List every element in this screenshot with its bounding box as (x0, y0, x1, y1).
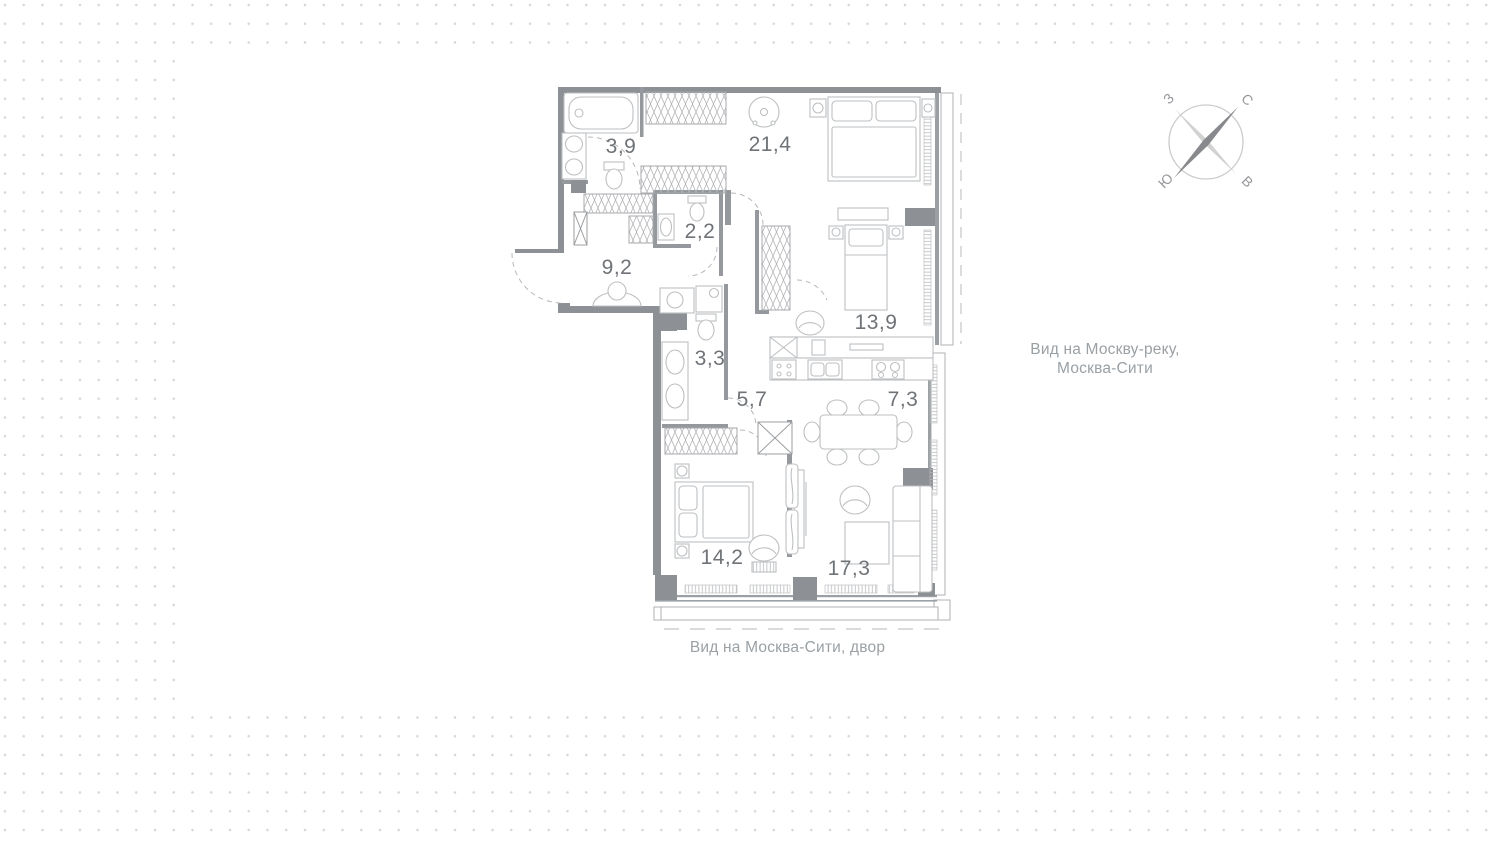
room-area-bedroom-3: 14,2 (701, 546, 744, 569)
compass-north-label: С (1238, 90, 1256, 108)
view-note-right-line2: Москва-Сити (1000, 359, 1210, 378)
floor-plan: 3,9 21,4 2,2 9,2 13,9 3,3 5,7 7,3 14,2 1… (500, 80, 970, 640)
nightstand-icon (675, 544, 689, 558)
single-bed-icon (845, 225, 887, 310)
room-area-wc: 2,2 (685, 220, 716, 243)
toilet-icon (688, 196, 706, 221)
sofa-icon (893, 486, 932, 592)
armchair-icon (749, 535, 779, 572)
nightstand-icon (810, 99, 826, 117)
nightstand-icon (829, 226, 843, 239)
double-bed-icon (675, 482, 753, 542)
wardrobe-icon (762, 226, 790, 310)
wardrobe-icon (646, 92, 726, 124)
room-area-bathroom: 3,9 (606, 135, 637, 158)
kitchen-sink-icon (808, 360, 842, 379)
view-note-right-line1: Вид на Москву-реку, (1000, 340, 1210, 359)
view-note-bottom-line: Вид на Москва-Сити, двор (660, 638, 915, 657)
dresser-icon (838, 208, 888, 220)
ceiling-lamp-icon (749, 97, 779, 127)
nightstand-icon (675, 464, 689, 478)
shaft-icon (574, 212, 587, 245)
washing-machine-icon (660, 288, 694, 313)
double-sink-icon (662, 342, 688, 420)
wardrobe-icon (665, 428, 737, 454)
hob-icon (872, 360, 904, 379)
room-area-kitchen: 7,3 (888, 388, 919, 411)
console-table-icon (593, 282, 641, 306)
nightstand-icon (922, 99, 935, 117)
armchair-icon (796, 311, 824, 335)
room-area-hallway: 9,2 (602, 256, 633, 279)
compass-east-label: В (1239, 173, 1257, 191)
armchair-icon (840, 486, 870, 514)
toilet-icon (696, 314, 716, 340)
shaft-icon (758, 422, 792, 454)
nightstand-icon (889, 226, 903, 239)
oven-icon (772, 360, 796, 379)
wardrobe-icon (584, 194, 653, 213)
entrance-door-arc (512, 253, 562, 303)
room-area-corridor: 5,7 (737, 388, 768, 411)
toilet-icon (604, 162, 624, 189)
view-note-right: Вид на Москву-реку, Москва-Сити (1000, 340, 1210, 378)
view-note-bottom: Вид на Москва-Сити, двор (660, 638, 915, 657)
double-sink-icon (562, 133, 586, 179)
shelf-unit-icon (629, 216, 653, 243)
room-area-bedroom-2: 13,9 (855, 311, 898, 334)
sink-icon (658, 214, 674, 240)
floor-plan-page: { "floor_plan": { "rooms": [ {"id": "bat… (0, 0, 1500, 842)
bathtub-icon (564, 93, 638, 133)
room-area-bedroom-main: 21,4 (749, 133, 792, 156)
double-bed-icon (828, 97, 920, 181)
room-area-living-room: 17,3 (828, 557, 871, 580)
compass-rose: З С Ю В (1158, 86, 1258, 198)
compass-south-label: Ю (1158, 170, 1176, 191)
compass-west-label: З (1160, 90, 1177, 107)
sink-icon (696, 286, 722, 312)
room-area-bathroom-2: 3,3 (695, 347, 726, 370)
wardrobe-icon (641, 166, 726, 193)
